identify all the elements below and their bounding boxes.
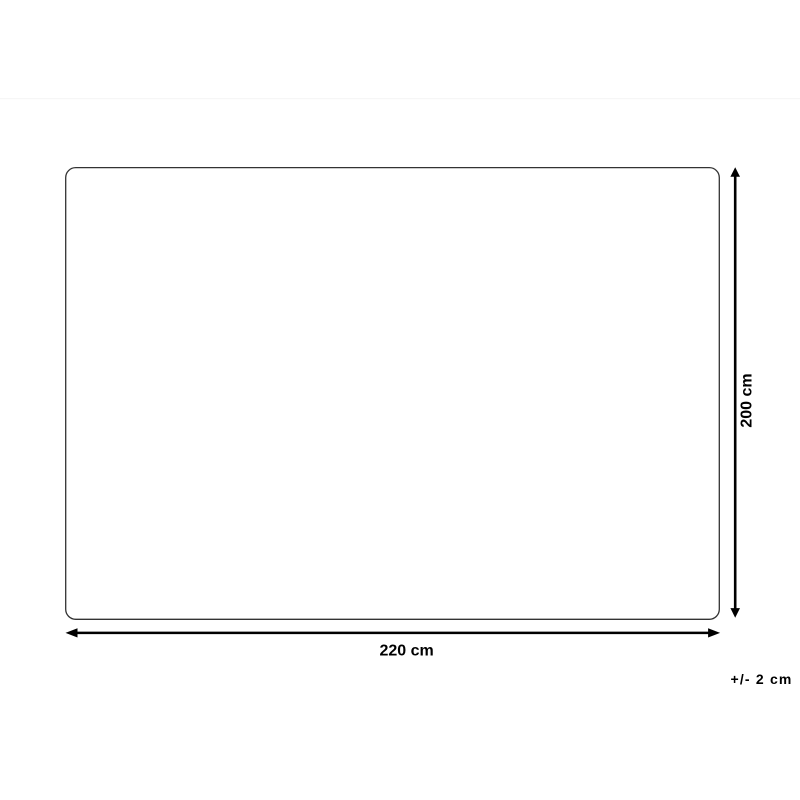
- svg-text:220 cm: 220 cm: [379, 643, 433, 660]
- svg-text:200 cm: 200 cm: [738, 373, 755, 427]
- svg-text:+/- 2 cm: +/- 2 cm: [730, 671, 792, 687]
